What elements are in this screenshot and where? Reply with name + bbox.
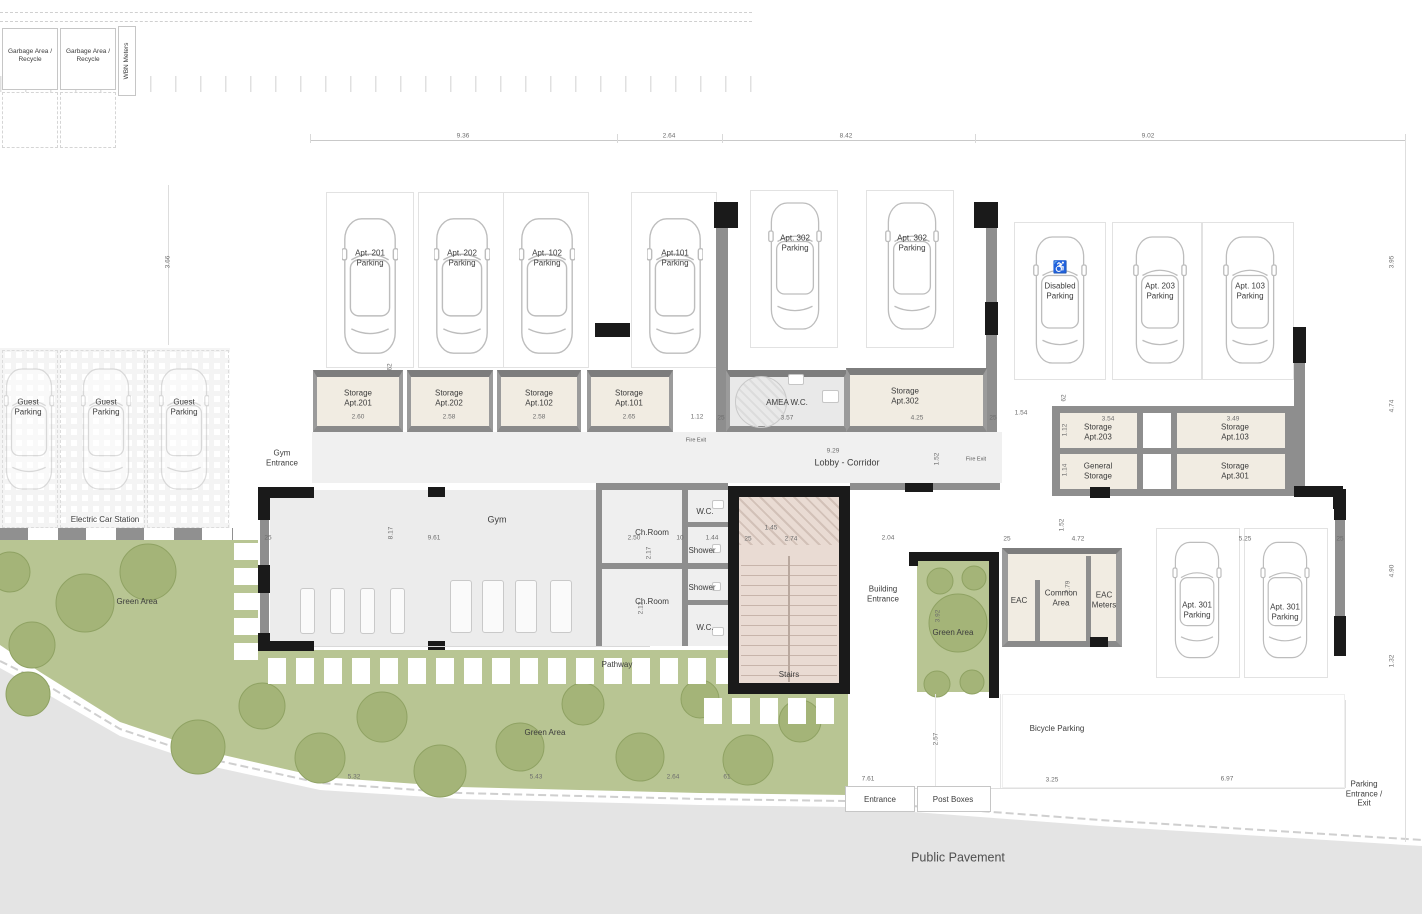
general-storage-room [1060, 454, 1137, 489]
wall-segment [1294, 363, 1305, 495]
wall-segment [1137, 413, 1143, 489]
wall-segment [1035, 580, 1040, 641]
gym-floor [270, 490, 596, 646]
gym-equipment [330, 588, 345, 634]
kerb-strip [0, 528, 233, 540]
car-icon [342, 210, 398, 362]
car-icon [1132, 230, 1188, 370]
column-block [1090, 637, 1108, 647]
gym-equipment [515, 580, 537, 633]
shower-icon [712, 582, 721, 591]
dim-line-left [168, 185, 169, 345]
car-icon [159, 356, 209, 502]
column-block [916, 552, 995, 561]
column-block [1334, 489, 1346, 520]
dim-line-right [1405, 140, 1406, 842]
toilet-icon [712, 627, 724, 636]
wall-segment [1335, 520, 1345, 616]
wbn-meters-room [118, 26, 136, 96]
gym-equipment [300, 588, 315, 634]
storage-room-apt301 [1177, 454, 1285, 489]
column-block [595, 323, 630, 337]
storage-room-apt101 [587, 370, 673, 432]
shower-icon [712, 544, 721, 553]
storage-room-apt202 [407, 370, 493, 432]
column-block [985, 302, 998, 335]
gym-equipment [482, 580, 504, 633]
car-icon [884, 196, 940, 336]
storage-room-apt203 [1060, 413, 1137, 448]
column-block [1334, 616, 1346, 656]
wall-segment [602, 563, 728, 569]
column-block [714, 202, 738, 228]
garbage-area-left [2, 28, 58, 90]
entrance-box [845, 786, 915, 812]
bicycle-parking-area [1002, 694, 1345, 788]
toilet-icon [822, 390, 839, 403]
car-icon [519, 210, 575, 362]
wall-segment [596, 483, 728, 490]
gym-equipment [390, 588, 405, 634]
garbage-yard-outline [2, 92, 58, 148]
car-icon [1222, 230, 1278, 370]
garbage-yard-outline [60, 92, 116, 148]
wall-segment [933, 483, 1000, 490]
wall-segment [682, 522, 728, 527]
car-icon [1032, 230, 1088, 370]
column-block [1293, 327, 1306, 363]
car-icon [767, 196, 823, 336]
wall-segment [260, 593, 269, 633]
gym-equipment [550, 580, 572, 633]
post-boxes-box [917, 786, 991, 812]
wall-segment [1171, 413, 1177, 489]
eac-block [1002, 548, 1122, 647]
wall-segment [1285, 406, 1295, 496]
column-block [905, 483, 933, 492]
column-block [1090, 487, 1110, 498]
sink-icon [788, 374, 804, 385]
wall-segment [260, 520, 269, 565]
car-icon [81, 356, 131, 502]
wall-segment [986, 335, 997, 434]
floor-plan: Garbage Area / Recycle Garbage Area / Re… [0, 0, 1422, 914]
wall-segment [850, 483, 905, 490]
lobby-corridor-floor [312, 432, 1002, 483]
storage-room-apt103 [1177, 413, 1285, 448]
wall-segment [1052, 406, 1295, 413]
car-icon [1258, 536, 1312, 664]
wall-segment [1052, 406, 1060, 496]
car-icon [647, 210, 703, 362]
boundary-dashed-strip [0, 12, 752, 22]
turning-circle [735, 376, 787, 428]
storage-room-apt302 [846, 368, 987, 432]
toilet-icon [712, 500, 724, 509]
car-icon [4, 356, 54, 502]
wall-segment [682, 600, 728, 605]
wall-segment [986, 228, 997, 302]
car-icon [434, 210, 490, 362]
column-block [428, 487, 445, 497]
column-block [258, 565, 270, 593]
column-block [974, 202, 998, 228]
column-block [258, 641, 314, 651]
wall-segment [1052, 489, 1295, 496]
gym-equipment [360, 588, 375, 634]
gym-equipment [450, 580, 472, 633]
garbage-area-right [60, 28, 116, 90]
dim-line-top [310, 140, 1405, 141]
storage-room-apt102 [497, 370, 581, 432]
column-block [258, 487, 270, 520]
storage-room-apt201 [313, 370, 403, 432]
wall-segment [1086, 556, 1091, 641]
car-icon [1170, 536, 1224, 664]
stairs-hatch [739, 497, 839, 545]
column-block [989, 552, 999, 698]
